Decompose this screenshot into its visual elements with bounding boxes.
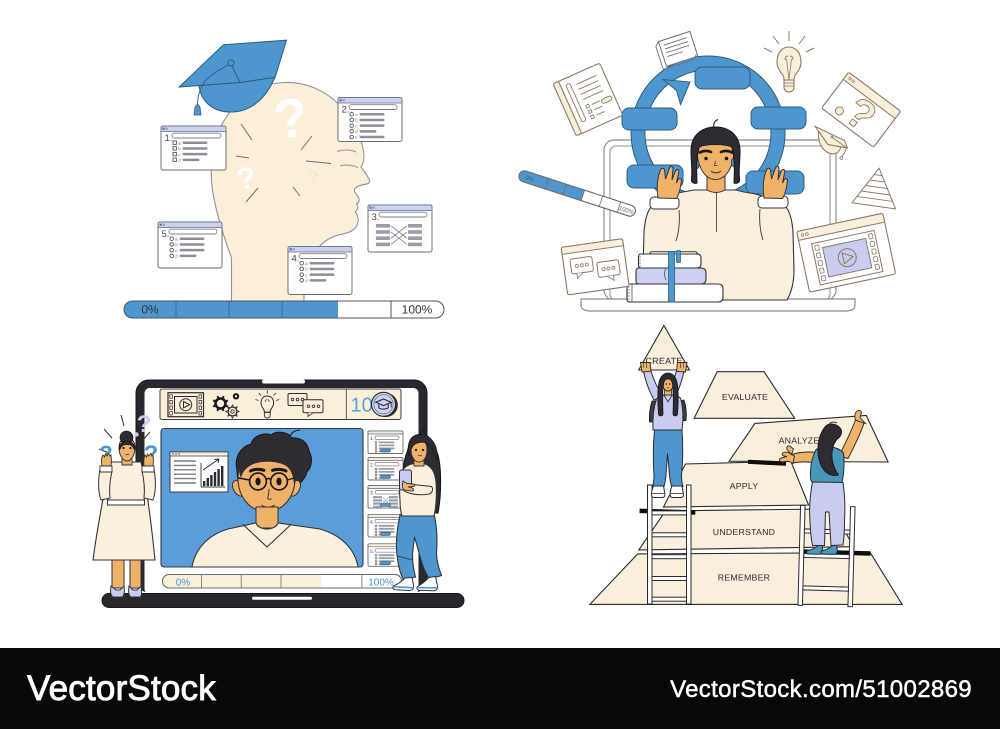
svg-text:UNDERSTAND: UNDERSTAND <box>713 527 775 537</box>
svg-text:1.: 1. <box>165 133 173 144</box>
svg-text:0%: 0% <box>176 578 191 589</box>
svg-text:5.: 5. <box>370 549 374 555</box>
svg-text:100%: 100% <box>368 578 394 589</box>
svg-text:ANALYZE: ANALYZE <box>779 436 820 446</box>
svg-text:0%: 0% <box>141 303 159 317</box>
svg-text:5.: 5. <box>162 229 170 240</box>
svg-text:100%: 100% <box>402 303 433 317</box>
svg-text:REMEMBER: REMEMBER <box>718 573 770 583</box>
svg-text:2.: 2. <box>342 105 350 116</box>
svg-text:4.: 4. <box>292 254 300 265</box>
svg-text:4.: 4. <box>370 519 374 525</box>
svg-text:3.: 3. <box>370 491 374 497</box>
svg-text:1.: 1. <box>370 436 374 442</box>
svg-text:?: ? <box>308 168 318 187</box>
svg-text:2.: 2. <box>370 463 374 469</box>
svg-text:3.: 3. <box>372 212 380 223</box>
svg-text:APPLY: APPLY <box>730 481 759 491</box>
svg-text:EVALUATE: EVALUATE <box>722 392 768 402</box>
svg-text:?: ? <box>137 411 152 438</box>
svg-text:10: 10 <box>351 395 373 417</box>
